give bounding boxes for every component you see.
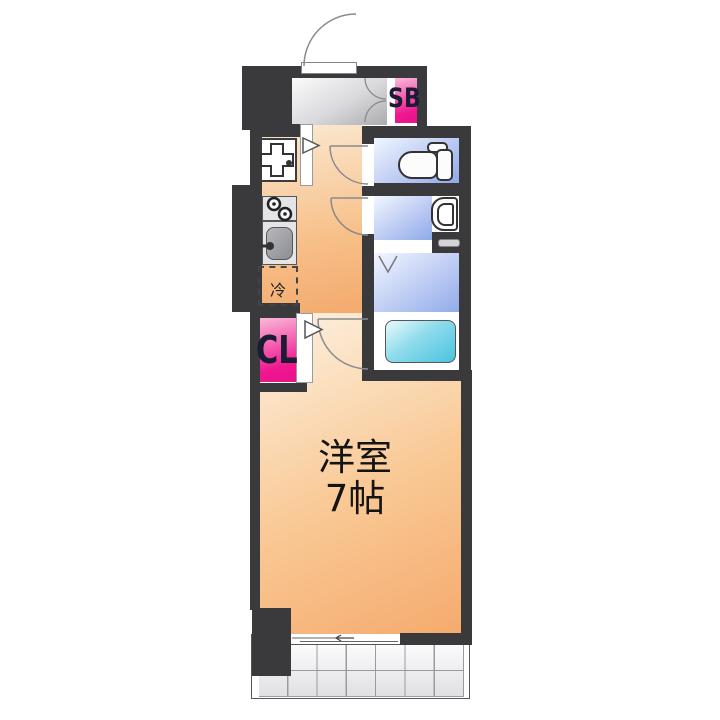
room-label: 洋室 7帖 (295, 438, 415, 519)
toilet-bowl (398, 151, 438, 179)
entrance-hall (292, 78, 387, 125)
refrigerator-label: 冷 (262, 277, 294, 301)
kitchen-door-leaf (300, 124, 313, 186)
room-size: 7帖 (295, 479, 415, 520)
main-room-door-leaf (296, 313, 313, 383)
toilet-tank (436, 149, 453, 181)
kitchen-sink-basin (266, 227, 293, 260)
room-name: 洋室 (295, 438, 415, 479)
wall-window (438, 239, 460, 247)
bathtub (385, 320, 456, 363)
entrance-door-leaf (301, 62, 357, 74)
closet-label: CL (256, 331, 298, 369)
bathroom (374, 253, 459, 315)
washbasin-room (374, 196, 432, 240)
sliding-window (291, 634, 400, 645)
shoe-box-label: SB (388, 85, 421, 112)
washbasin-inner (437, 203, 454, 226)
toilet-doorway (362, 144, 374, 186)
washing-machine-pan (260, 138, 297, 182)
bathroom-door-band (374, 240, 432, 253)
washbasin-doorway (362, 196, 374, 234)
floor-plan: SB CL 洋室 7帖 冷 (0, 0, 720, 720)
stove (262, 196, 297, 221)
